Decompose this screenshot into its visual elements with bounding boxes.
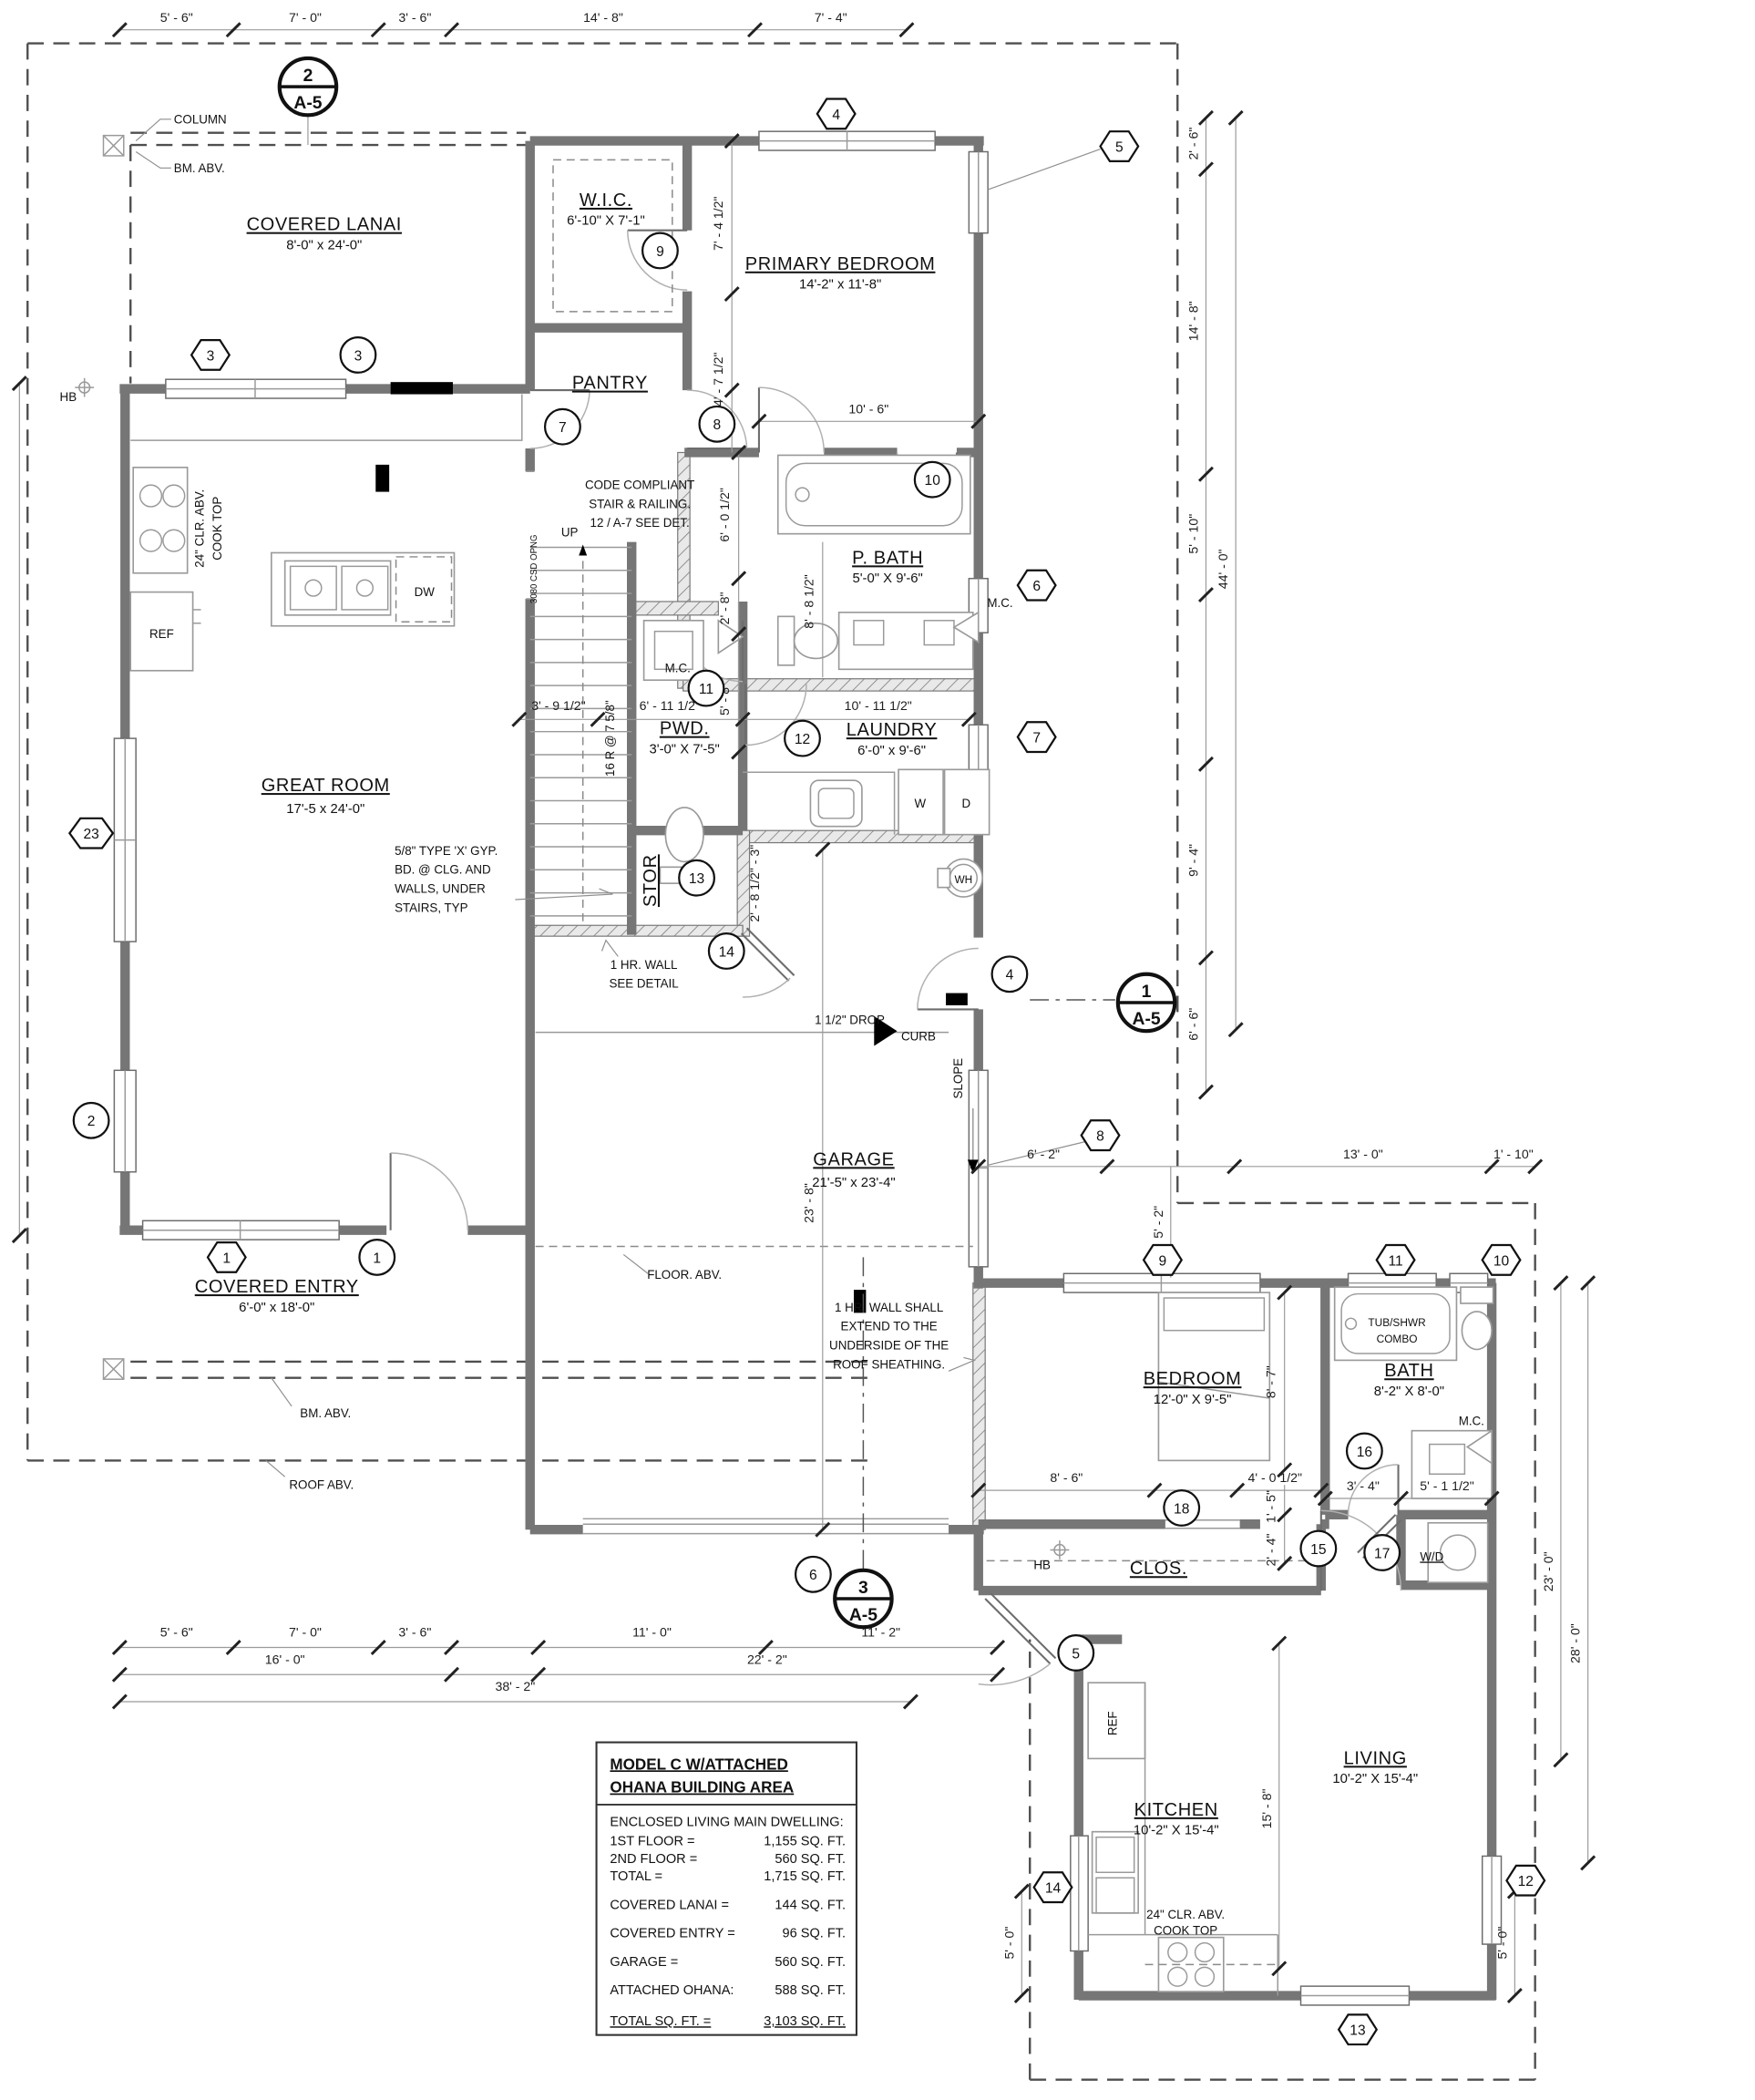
window-glyph xyxy=(166,379,346,398)
dim-label: 5' - 6" xyxy=(160,10,193,25)
window-glyph xyxy=(969,151,988,232)
door-tag-3: 3 xyxy=(341,337,376,373)
room-label-garage: GARAGE xyxy=(813,1149,894,1169)
dim-label: 4' - 0 1/2" xyxy=(1248,1470,1302,1485)
window-tag-7: 7 xyxy=(1018,722,1056,752)
table-row-label: GARAGE = xyxy=(610,1955,678,1970)
svg-text:4: 4 xyxy=(832,108,840,123)
fixtures-layer xyxy=(130,160,1493,1995)
svg-text:5: 5 xyxy=(1115,139,1124,155)
label-tub-shwr: TUB/SHWR xyxy=(1368,1316,1426,1329)
note-hb: HB xyxy=(60,390,77,404)
svg-text:14: 14 xyxy=(1045,1881,1062,1897)
kitchen-sink-icon xyxy=(1093,1832,1139,1913)
note-clr2: COOK TOP xyxy=(210,497,224,561)
table-header: ENCLOSED LIVING MAIN DWELLING: xyxy=(610,1816,843,1830)
room-label-kitchen: KITCHEN xyxy=(1134,1800,1218,1820)
table-title-2: OHANA BUILDING AREA xyxy=(610,1779,794,1796)
svg-text:10: 10 xyxy=(1493,1253,1510,1269)
svg-text:9: 9 xyxy=(656,244,664,260)
window-glyph xyxy=(1063,1273,1260,1292)
window-tag-13: 13 xyxy=(1339,2014,1377,2044)
room-label-p-bath: P. BATH xyxy=(852,548,923,568)
window-tag-8: 8 xyxy=(1082,1120,1120,1150)
svg-text:A-5: A-5 xyxy=(1132,1010,1160,1029)
window-glyph xyxy=(1301,1986,1410,2005)
svg-text:3: 3 xyxy=(858,1579,868,1598)
window-tag-5: 5 xyxy=(1101,131,1139,161)
floor-plan-svg: 5' - 6" 7' - 0" 3' - 6" 14' - 8" 7' - 4"… xyxy=(0,0,1755,2100)
door-tag-13: 13 xyxy=(679,860,714,896)
note-csd-opng: 3080 CSD OPNG xyxy=(529,534,539,603)
dim-label: 5' - 0" xyxy=(1494,1927,1509,1960)
svg-text:16: 16 xyxy=(1357,1445,1372,1460)
svg-text:A-5: A-5 xyxy=(849,1606,877,1625)
svg-text:17: 17 xyxy=(1374,1546,1390,1561)
window-tag-1: 1 xyxy=(208,1242,246,1272)
table-row-label: COVERED LANAI = xyxy=(610,1898,729,1912)
walls-layer xyxy=(119,141,1495,2000)
door-tag-10: 10 xyxy=(915,462,950,498)
room-size-bath: 8'-2" X 8'-0" xyxy=(1374,1385,1444,1399)
window-tag-12: 12 xyxy=(1506,1866,1545,1896)
room-label-wic: W.I.C. xyxy=(580,190,632,211)
window-tag-14: 14 xyxy=(1034,1872,1072,1902)
window-tag-10: 10 xyxy=(1483,1245,1521,1275)
dim-label: 15' - 8" xyxy=(1259,1789,1274,1829)
door-tag-12: 12 xyxy=(785,721,820,757)
door-tag-14: 14 xyxy=(709,933,744,969)
dim-label: 16' - 0" xyxy=(265,1652,305,1666)
svg-text:12: 12 xyxy=(795,732,810,747)
room-size-living: 10'-2" X 15'-4" xyxy=(1332,1772,1418,1786)
door-tag-7: 7 xyxy=(545,409,580,445)
dim-label: 2' - 4" xyxy=(1263,1534,1278,1567)
room-label-bath: BATH xyxy=(1384,1361,1433,1381)
dim-label: 23' - 0" xyxy=(1541,1551,1555,1591)
table-row-value: 588 SQ. FT. xyxy=(775,1983,846,1998)
room-size-covered-entry: 6'-0" x 18'-0" xyxy=(239,1301,314,1315)
dim-label: 6' - 11 1/2" xyxy=(640,698,700,713)
room-label-pwd: PWD. xyxy=(660,719,710,739)
note-1hr-ext1: 1 HR. WALL SHALL xyxy=(835,1301,943,1314)
counter-edge xyxy=(130,395,522,441)
dim-label: 6' - 2" xyxy=(1027,1147,1060,1161)
label-ref: REF xyxy=(149,627,174,641)
note-slope: SLOPE xyxy=(951,1058,965,1099)
room-label-primary-bedroom: PRIMARY BEDROOM xyxy=(745,254,936,274)
dim-label: 28' - 0" xyxy=(1568,1623,1583,1663)
room-size-primary-bedroom: 14'-2" x 11'-8" xyxy=(799,278,881,293)
door-tag-17: 17 xyxy=(1364,1535,1400,1570)
note-1hr-ext2: EXTEND TO THE xyxy=(841,1320,938,1333)
svg-text:A-5: A-5 xyxy=(293,94,322,113)
note-1hr-wall: 1 HR. WALL xyxy=(611,958,678,972)
dim-label: 7' - 0" xyxy=(289,10,322,25)
hose-bib-icon xyxy=(75,378,94,397)
dim-label: 5' - 6" xyxy=(160,1625,193,1640)
dim-label: 4' - 7 1/2" xyxy=(711,352,725,406)
dim-label: 3' - 4" xyxy=(1347,1478,1380,1493)
table-row-value: 560 SQ. FT. xyxy=(775,1852,846,1867)
svg-text:1: 1 xyxy=(373,1251,381,1266)
wall-post xyxy=(946,993,968,1005)
door-tag-9: 9 xyxy=(642,233,678,269)
dim-label: 2' - 8" xyxy=(717,592,732,624)
room-label-clos: CLOS. xyxy=(1130,1559,1187,1579)
dim-label: 2' - 8 1/2" - 3" xyxy=(747,845,762,922)
note-1hr-ext4: ROOF SHEATHING. xyxy=(833,1357,945,1371)
lanai-door xyxy=(391,382,453,394)
column-glyph xyxy=(103,136,123,156)
dim-label: 8' - 7" xyxy=(1263,1365,1278,1398)
laundry-sink-icon xyxy=(810,780,861,827)
note-1hr-ext3: UNDERSIDE OF THE xyxy=(829,1339,949,1353)
note-mc: M.C. xyxy=(665,661,691,674)
room-label-covered-entry: COVERED ENTRY xyxy=(195,1277,359,1297)
door-tag-11: 11 xyxy=(689,671,724,706)
table-title-1: MODEL C W/ATTACHED xyxy=(610,1755,787,1773)
area-table: MODEL C W/ATTACHED OHANA BUILDING AREA E… xyxy=(597,1743,857,2035)
door-tag-1: 1 xyxy=(359,1240,395,1275)
dim-label: 10' - 6" xyxy=(848,401,888,416)
door-tag-4: 4 xyxy=(992,956,1028,992)
label-dryer: D xyxy=(962,797,971,810)
toilet-icon xyxy=(1461,1287,1493,1349)
door-tag-8: 8 xyxy=(700,407,735,442)
svg-text:3: 3 xyxy=(354,348,363,364)
svg-text:3: 3 xyxy=(207,348,215,364)
dim-label: 5' - 10" xyxy=(1186,514,1201,554)
room-label-laundry: LAUNDRY xyxy=(847,720,938,740)
window-tag-11: 11 xyxy=(1377,1245,1415,1275)
svg-text:18: 18 xyxy=(1174,1501,1189,1517)
svg-text:15: 15 xyxy=(1310,1542,1327,1558)
note-curb: CURB xyxy=(901,1030,936,1044)
note-clr2: COOK TOP xyxy=(1154,1924,1217,1938)
section-marker-1-A5: 1 A-5 xyxy=(1118,974,1175,1031)
note-mc: M.C. xyxy=(1459,1415,1484,1428)
room-label-pantry: PANTRY xyxy=(572,374,648,394)
label-wd: W/D xyxy=(1420,1549,1443,1563)
table-row-label: TOTAL SQ. FT. = xyxy=(610,2014,711,2029)
window-tag-4: 4 xyxy=(817,99,856,129)
room-size-wic: 6'-10" X 7'-1" xyxy=(567,214,645,229)
svg-text:2: 2 xyxy=(303,67,313,86)
window-tag-3: 3 xyxy=(191,340,230,370)
range-icon xyxy=(133,468,187,573)
label-dw: DW xyxy=(415,585,436,599)
dim-label: 5' - 1 1/2" xyxy=(1420,1478,1473,1493)
label-washer: W xyxy=(915,797,927,810)
window-glyph xyxy=(114,1070,136,1171)
room-size-kitchen: 10'-2" X 15'-4" xyxy=(1134,1824,1219,1838)
window-glyph xyxy=(114,738,136,942)
svg-text:13: 13 xyxy=(689,871,704,887)
door-tag-2: 2 xyxy=(74,1103,109,1138)
room-label-great-room: GREAT ROOM xyxy=(262,776,390,796)
hose-bib-icon xyxy=(1051,1540,1070,1560)
dim-label: 7' - 4 1/2" xyxy=(711,197,725,251)
room-size-bedroom: 12'-0" X 9'-5" xyxy=(1154,1393,1232,1407)
room-label-bedroom: BEDROOM xyxy=(1144,1369,1242,1389)
dim-label: 8' - 8 1/2" xyxy=(801,574,816,628)
dim-label: 2' - 6" xyxy=(1186,128,1201,160)
island-sink-icon xyxy=(285,561,391,614)
note-gyp2: BD. @ CLG. AND xyxy=(395,863,491,877)
note-up: UP xyxy=(561,526,579,540)
table-row-label: ATTACHED OHANA: xyxy=(610,1983,734,1998)
room-size-covered-lanai: 8'-0" x 24'-0" xyxy=(286,239,362,253)
vanity-icon xyxy=(839,612,973,669)
dim-label: 6' - 0 1/2" xyxy=(717,488,732,541)
dim-label: 5' - 0" xyxy=(1001,1927,1016,1960)
svg-text:11: 11 xyxy=(1388,1253,1402,1269)
dim-label: 6' - 6" xyxy=(1186,1008,1201,1041)
svg-text:2: 2 xyxy=(87,1114,96,1129)
dim-label: 8' - 6" xyxy=(1050,1470,1083,1485)
svg-text:14: 14 xyxy=(719,944,735,960)
window-glyph xyxy=(143,1220,340,1240)
table-row-label: 1ST FLOOR = xyxy=(610,1835,694,1849)
section-marker-3-A5: 3 A-5 xyxy=(835,1570,891,1627)
room-label-stor: STOR xyxy=(641,854,661,907)
dim-label: 3' - 6" xyxy=(398,10,431,25)
svg-text:11: 11 xyxy=(699,682,713,697)
note-column: COLUMN xyxy=(174,112,227,126)
dim-label: 5' - 2" xyxy=(1151,1206,1165,1239)
note-risers: 16 R @ 7 5/8" xyxy=(603,700,617,777)
svg-text:12: 12 xyxy=(1518,1874,1534,1889)
dim-label: 7' - 4" xyxy=(815,10,847,25)
window-glyph xyxy=(1071,1836,1088,1951)
dim-label: 7' - 0" xyxy=(289,1625,322,1640)
dim-label: 9' - 4" xyxy=(1186,844,1201,877)
dimensions-layer: 5' - 6" 7' - 0" 3' - 6" 14' - 8" 7' - 4"… xyxy=(13,10,1595,2002)
svg-text:13: 13 xyxy=(1350,2023,1365,2039)
room-size-pwd: 3'-0" X 7'-5" xyxy=(650,742,720,757)
table-row-value: 560 SQ. FT. xyxy=(775,1955,846,1970)
note-bm-abv: BM. ABV. xyxy=(174,161,225,175)
room-label-covered-lanai: COVERED LANAI xyxy=(247,215,402,235)
dim-label: 3' - 6" xyxy=(398,1625,431,1640)
window-tag-6: 6 xyxy=(1018,571,1056,601)
table-row-label: TOTAL = xyxy=(610,1869,662,1884)
note-clr1: 24" CLR. ABV. xyxy=(1146,1908,1225,1921)
dim-label: 1' - 5" xyxy=(1263,1490,1278,1523)
dim-label: 11' - 0" xyxy=(632,1625,672,1640)
svg-text:23: 23 xyxy=(83,827,98,842)
dim-label: 1' - 10" xyxy=(1493,1147,1534,1161)
note-roof-abv: ROOF ABV. xyxy=(289,1478,354,1492)
note-code2: STAIR & RAILING. xyxy=(589,497,691,510)
svg-text:1: 1 xyxy=(1142,983,1152,1002)
dim-label: 14' - 8" xyxy=(1186,301,1201,341)
note-gyp3: WALLS, UNDER xyxy=(395,882,486,896)
dim-label: 44' - 0" xyxy=(1216,549,1230,589)
table-row-value: 1,155 SQ. FT. xyxy=(764,1835,846,1849)
note-gyp4: STAIRS, TYP xyxy=(395,901,468,914)
dim-label: 10' - 11 1/2" xyxy=(845,698,912,713)
dim-label: 14' - 8" xyxy=(583,10,623,25)
dim-label: 38' - 2" xyxy=(495,1679,535,1693)
room-label-living: LIVING xyxy=(1344,1748,1407,1768)
window-glyph xyxy=(759,131,935,150)
svg-text:8: 8 xyxy=(1096,1129,1104,1145)
svg-text:5: 5 xyxy=(1072,1646,1080,1662)
door-tag-16: 16 xyxy=(1347,1434,1382,1469)
room-size-laundry: 6'-0" x 9'-6" xyxy=(857,744,926,758)
svg-text:8: 8 xyxy=(713,417,722,433)
svg-text:10: 10 xyxy=(925,473,941,489)
door-tag-15: 15 xyxy=(1301,1531,1337,1567)
door-tag-18: 18 xyxy=(1164,1490,1199,1526)
window-tag-9: 9 xyxy=(1144,1245,1182,1275)
dim-label: 13' - 0" xyxy=(1343,1147,1383,1161)
column-glyph xyxy=(103,1359,123,1379)
door-tag-5: 5 xyxy=(1058,1635,1093,1671)
note-drop: 1 1/2" DROP xyxy=(815,1014,885,1027)
svg-text:4: 4 xyxy=(1006,968,1014,983)
stair-up-arrow xyxy=(579,545,587,556)
door-tag-6: 6 xyxy=(795,1557,831,1592)
room-size-great-room: 17'-5 x 24'-0" xyxy=(286,802,364,817)
table-row-label: COVERED ENTRY = xyxy=(610,1927,734,1941)
dim-label: 22' - 2" xyxy=(747,1652,787,1666)
section-marker-2-A5: 2 A-5 xyxy=(280,58,336,115)
svg-text:7: 7 xyxy=(1032,731,1041,746)
label-wh: WH xyxy=(954,873,972,886)
label-ref: REF xyxy=(1105,1711,1119,1735)
note-code1: CODE COMPLIANT xyxy=(585,479,694,492)
table-row-value: 96 SQ. FT. xyxy=(783,1927,847,1941)
svg-text:6: 6 xyxy=(809,1568,817,1583)
svg-text:7: 7 xyxy=(559,420,567,436)
note-clr1: 24" CLR. ABV. xyxy=(192,489,206,568)
note-hb: HB xyxy=(1033,1558,1051,1571)
window-tag-23: 23 xyxy=(69,818,113,849)
wall-post xyxy=(375,465,389,492)
note-1hr-wall2: SEE DETAIL xyxy=(609,977,678,991)
svg-text:6: 6 xyxy=(1032,579,1041,594)
note-mc: M.C. xyxy=(987,596,1012,610)
dim-label: 3' - 9 1/2" xyxy=(531,698,585,713)
windows-layer xyxy=(114,131,1501,2005)
table-row-value: 3,103 SQ. FT. xyxy=(764,2014,846,2029)
note-code3: 12 / A-7 SEE DET. xyxy=(590,516,690,530)
table-row-value: 144 SQ. FT. xyxy=(775,1898,846,1912)
table-row-label: 2ND FLOOR = xyxy=(610,1852,697,1867)
svg-text:9: 9 xyxy=(1159,1253,1167,1269)
label-combo: COMBO xyxy=(1377,1333,1418,1345)
svg-text:1: 1 xyxy=(222,1251,231,1266)
table-row-value: 1,715 SQ. FT. xyxy=(764,1869,846,1884)
note-bm-abv: BM. ABV. xyxy=(300,1406,351,1420)
note-gyp1: 5/8" TYPE 'X' GYP. xyxy=(395,844,498,858)
room-size-garage: 21'-5" x 23'-4" xyxy=(812,1176,895,1190)
room-size-p-bath: 5'-0" X 9'-6" xyxy=(852,571,922,586)
note-floor-abv: FLOOR. ABV. xyxy=(647,1268,722,1282)
